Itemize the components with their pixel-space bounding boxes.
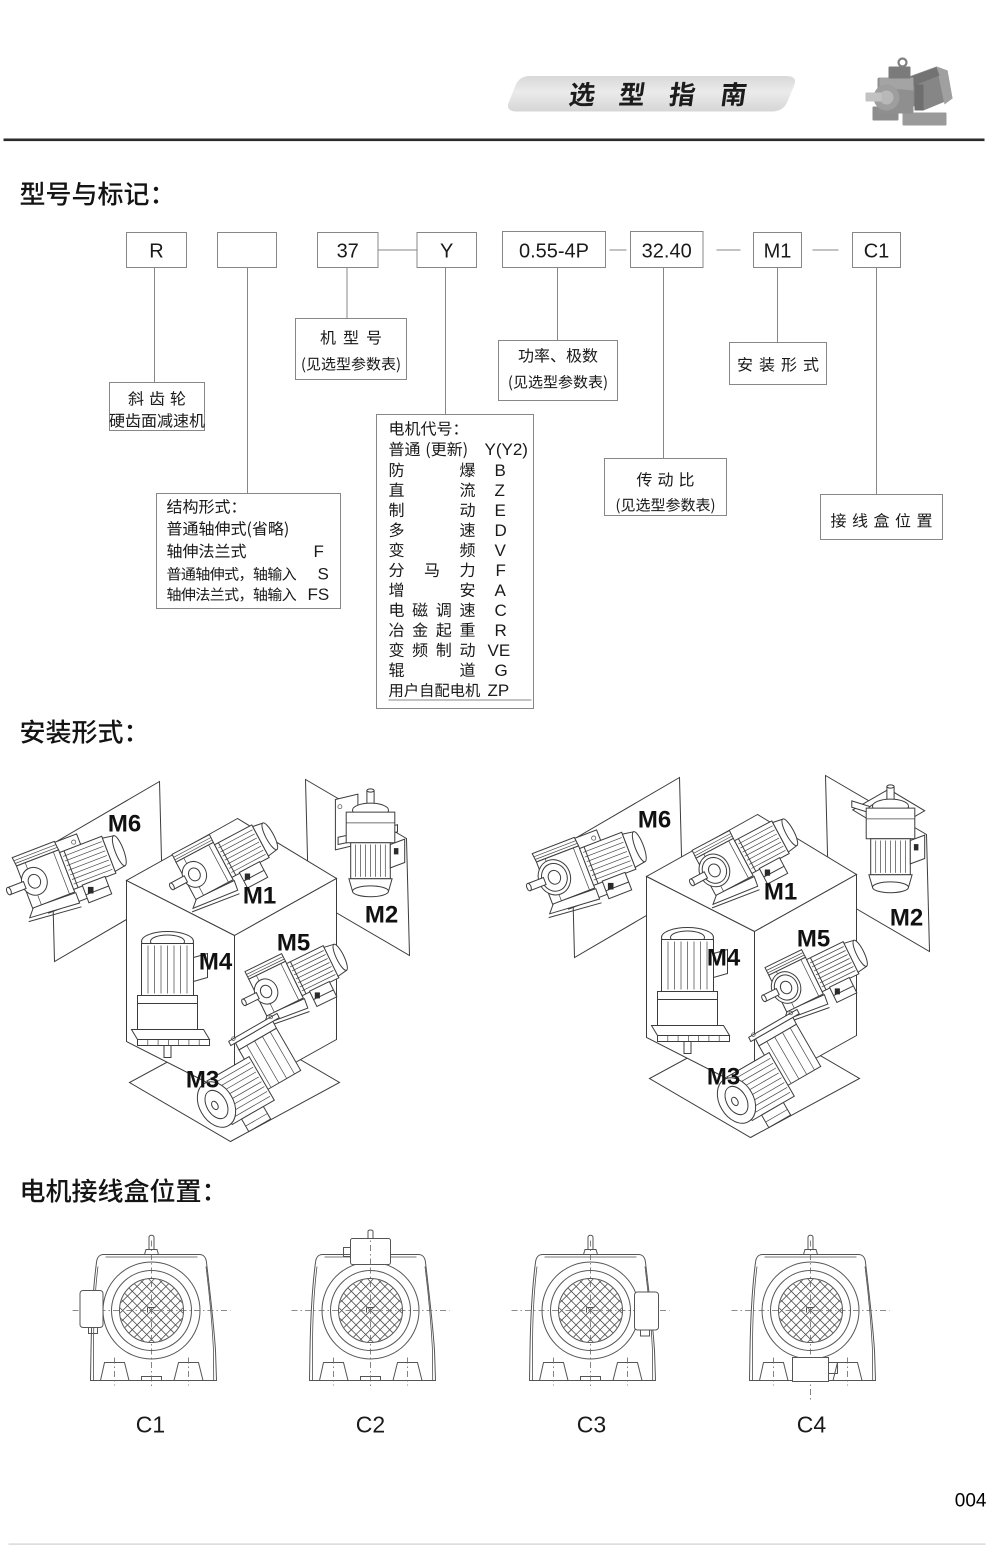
svg-text:A: A bbox=[495, 581, 507, 600]
svg-text:Y: Y bbox=[440, 241, 453, 263]
svg-text:FS: FS bbox=[308, 585, 330, 604]
svg-text:VE: VE bbox=[488, 641, 511, 660]
svg-text:C3: C3 bbox=[577, 1412, 606, 1438]
svg-text:C1: C1 bbox=[864, 241, 890, 263]
svg-text:M2: M2 bbox=[890, 905, 923, 932]
svg-text:C2: C2 bbox=[356, 1412, 385, 1438]
svg-text:M5: M5 bbox=[797, 926, 830, 953]
svg-text:D: D bbox=[495, 521, 507, 540]
svg-text:004: 004 bbox=[955, 1491, 987, 1512]
svg-text:C1: C1 bbox=[136, 1412, 165, 1438]
svg-text:M6: M6 bbox=[108, 811, 141, 838]
svg-text:M1: M1 bbox=[764, 241, 792, 263]
svg-text:32.40: 32.40 bbox=[642, 241, 692, 263]
svg-text:R: R bbox=[495, 621, 507, 640]
svg-text:F: F bbox=[314, 542, 324, 561]
svg-text:C4: C4 bbox=[797, 1412, 827, 1438]
svg-text:C: C bbox=[495, 601, 507, 620]
svg-text:M4: M4 bbox=[707, 945, 741, 972]
svg-text:R: R bbox=[149, 241, 163, 263]
svg-text:E: E bbox=[495, 501, 506, 520]
svg-text:M3: M3 bbox=[707, 1064, 740, 1091]
svg-text:M6: M6 bbox=[638, 807, 671, 834]
svg-text:M1: M1 bbox=[764, 879, 797, 906]
svg-text:F: F bbox=[496, 561, 506, 580]
svg-text:S: S bbox=[318, 565, 329, 584]
svg-text:0.55-4P: 0.55-4P bbox=[519, 241, 589, 263]
svg-text:Y(Y2): Y(Y2) bbox=[485, 440, 528, 459]
svg-text:M4: M4 bbox=[199, 949, 233, 976]
svg-text:M3: M3 bbox=[186, 1067, 219, 1094]
svg-text:G: G bbox=[495, 661, 508, 680]
svg-text:M5: M5 bbox=[277, 930, 310, 957]
svg-text:B: B bbox=[495, 461, 506, 480]
svg-text:ZP: ZP bbox=[488, 681, 510, 700]
svg-text:M1: M1 bbox=[243, 883, 276, 910]
svg-text:37: 37 bbox=[337, 241, 359, 263]
svg-text:Z: Z bbox=[495, 481, 505, 500]
svg-text:V: V bbox=[495, 541, 507, 560]
svg-text:M2: M2 bbox=[365, 902, 398, 929]
